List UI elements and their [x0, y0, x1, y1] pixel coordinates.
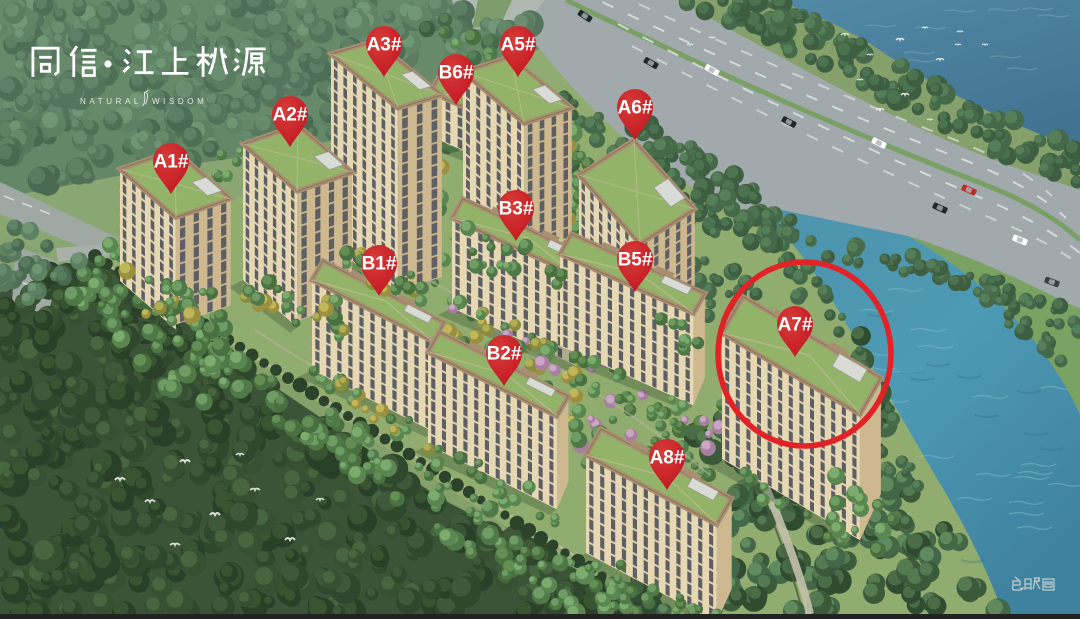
svg-text:B5#: B5#: [618, 250, 653, 271]
svg-text:B6#: B6#: [439, 63, 474, 84]
svg-text:A5#: A5#: [501, 35, 536, 56]
svg-text:B2#: B2#: [487, 344, 522, 365]
svg-text:A3#: A3#: [367, 35, 402, 56]
svg-text:B1#: B1#: [362, 254, 397, 275]
svg-text:A7#: A7#: [778, 315, 813, 336]
svg-text:A8#: A8#: [650, 448, 685, 469]
svg-text:WISDOM: WISDOM: [152, 97, 207, 106]
svg-text:B3#: B3#: [499, 199, 534, 220]
svg-text:A2#: A2#: [273, 105, 308, 126]
svg-text:A6#: A6#: [618, 98, 653, 119]
svg-text:A1#: A1#: [154, 152, 189, 173]
svg-text:NATURAL: NATURAL: [80, 97, 142, 106]
